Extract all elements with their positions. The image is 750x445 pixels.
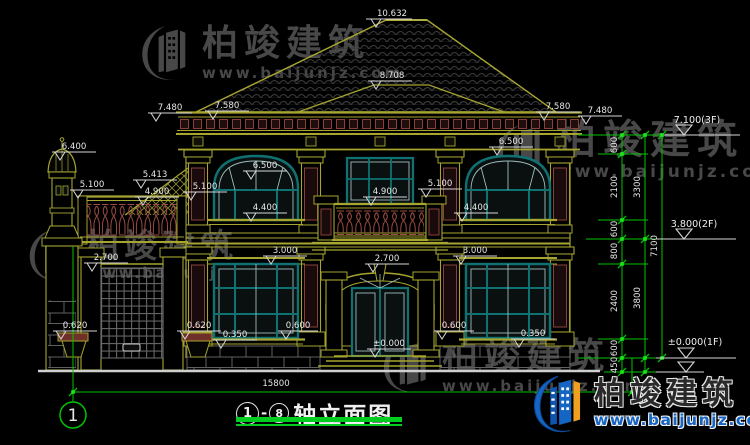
elev-annex-roof-low: 4.900 — [145, 187, 170, 197]
elev-win2-top-right: 6.500 — [499, 137, 524, 147]
elev-upper-hip: 8.708 — [380, 71, 405, 81]
axis-grid-bubble: 1 — [60, 402, 86, 428]
dim-600-b: 600 — [610, 221, 620, 237]
brand-logo-url: www.baijunjz.com — [594, 413, 750, 429]
main-roof — [196, 20, 556, 112]
elev-plinth-left: 0.350 — [223, 330, 248, 340]
level-2f: 3.800(2F) — [671, 219, 718, 230]
dim-450: 450 — [610, 357, 620, 373]
second-floor-window-right — [459, 156, 557, 225]
elev-annex-roof-high: 5.413 — [143, 170, 168, 180]
elev-balcony-pier: 5.100 — [428, 179, 453, 189]
axis-bubble-number: 1 — [68, 406, 79, 426]
left-annex — [42, 138, 212, 370]
elev-eave-right: 7.480 — [588, 106, 613, 116]
dim-2400: 2400 — [610, 290, 620, 312]
title-underline-thick — [236, 417, 402, 422]
lattice-screen — [101, 264, 163, 358]
brand-logo-icon — [528, 372, 588, 436]
dim-800: 800 — [610, 243, 620, 259]
elev-win2-sill-right: 4.400 — [464, 203, 489, 213]
dim-3800: 3800 — [633, 287, 643, 309]
elev-wall-parapet: 5.100 — [193, 182, 218, 192]
dim-600-c: 600 — [610, 340, 620, 356]
elev-door-side-right: 0.600 — [442, 321, 467, 331]
dim-3300: 3300 — [633, 176, 643, 198]
brand-logo-text: 柏竣建筑 — [594, 379, 750, 410]
dim-7100: 7100 — [650, 235, 660, 257]
cad-viewport: 柏竣建筑 www.baijunjz.com 柏竣建筑 www.baijunjz.… — [0, 0, 750, 445]
level-basement-marker — [656, 362, 704, 372]
balcony — [312, 196, 448, 250]
title-underline-thin — [236, 424, 402, 426]
dim-15800: 15800 — [262, 379, 289, 389]
elev-gate-screen-top: 2.700 — [94, 253, 119, 263]
elev-win2-sill-left: 4.400 — [253, 203, 278, 213]
elev-planter-left: 0.620 — [63, 321, 88, 331]
elev-door-side-left: 0.600 — [286, 321, 311, 331]
elev-win2-top-left: 6.500 — [253, 161, 278, 171]
elev-ground: ±0.000 — [373, 339, 405, 349]
elev-win1-top-right: 3.000 — [463, 246, 488, 256]
elev-ridge: 10.632 — [377, 9, 407, 19]
dim-600-a: 600 — [610, 137, 620, 153]
elev-roof-left: 7.580 — [215, 101, 240, 111]
entrance — [318, 264, 442, 366]
elev-roof-right: 7.580 — [546, 102, 571, 112]
elev-balcony-rail: 4.900 — [373, 187, 398, 197]
elev-plinth-right: 0.350 — [521, 329, 546, 339]
elev-win1-top-left: 3.000 — [273, 246, 298, 256]
annex-balustrade — [78, 196, 188, 244]
floor-level-markers: 7.100(3F) 3.800(2F) ±0.000(1F) — [656, 115, 740, 372]
elev-annex-parapet: 5.100 — [80, 180, 105, 190]
elev-planter-right: 0.620 — [187, 321, 212, 331]
elev-eave-left: 7.480 — [158, 103, 183, 113]
elev-turret: 6.400 — [62, 142, 87, 152]
level-1f: ±0.000(1F) — [668, 337, 723, 348]
elev-entry-arch-top: 2.700 — [375, 254, 400, 264]
brand-logo: 柏竣建筑 www.baijunjz.com — [528, 372, 750, 436]
dim-2100: 2100 — [610, 176, 620, 198]
level-3f: 7.100(3F) — [674, 115, 721, 126]
